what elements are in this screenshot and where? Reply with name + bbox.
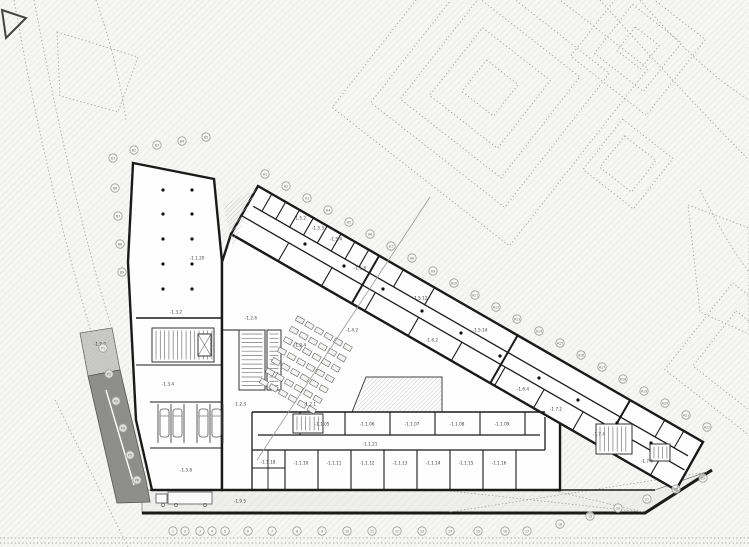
grid-bubble-bottom-label: 22	[674, 487, 678, 491]
grid-bubble-diagonal-label: A21	[683, 413, 689, 417]
room-label: -1.5.12	[413, 296, 428, 301]
grid-bubble-ramp-label: P3	[114, 399, 118, 403]
room-label: -1.3.2	[170, 310, 183, 315]
grid-bubble-bottom-label: 19	[588, 514, 592, 518]
grid-bubble-bottom-label: 1	[172, 529, 174, 533]
grid-bubble-ramp-label: P5	[128, 453, 132, 457]
west-block	[128, 163, 222, 490]
car	[199, 409, 208, 437]
grid-bubble-west-label: B8	[118, 242, 122, 246]
room-label: -1.1.13	[393, 461, 408, 466]
grid-bubble-bottom-label: 6	[247, 529, 249, 533]
room-label: -1.9.5	[234, 499, 247, 504]
grid-bubble-diagonal-label: A16	[578, 353, 584, 357]
room-label: -1.6.4	[517, 387, 530, 392]
grid-bubble-west-label: B4	[180, 139, 184, 143]
grid-bubble-bottom-label: 12	[395, 529, 399, 533]
grid-bubble-west-label: B3	[155, 143, 159, 147]
column-dot	[615, 421, 618, 424]
grid-bubble-diagonal-label: A20	[662, 401, 668, 405]
room-label: -1.1.16	[492, 461, 507, 466]
column-dot	[161, 188, 164, 191]
room-label: -1.7.6	[641, 459, 654, 464]
room-label: -1.3.4	[162, 382, 175, 387]
grid-bubble-ramp-label: P2	[107, 372, 111, 376]
column-dot	[381, 287, 384, 290]
grid-bubble-bottom-label: 16	[503, 529, 507, 533]
grid-bubble-west-label: B6	[113, 186, 117, 190]
room-label: -1.1.14	[426, 461, 441, 466]
room-label: -1.2.6	[245, 316, 258, 321]
room-label: -1.3.8	[180, 468, 193, 473]
column-dot	[576, 398, 579, 401]
room-label: -1.7.2	[550, 407, 563, 412]
column-dot	[190, 262, 193, 265]
grid-bubble-bottom-label: 10	[345, 529, 349, 533]
grid-bubble-diagonal-label: A18	[620, 377, 626, 381]
grid-bubble-bottom-label: 4	[211, 529, 213, 533]
column-dot	[161, 262, 164, 265]
grid-bubble-diagonal-label: A11	[472, 293, 478, 297]
grid-bubble-diagonal-label: A3	[305, 196, 309, 200]
room-label: -1.5.14	[473, 328, 488, 333]
room-label: -1.2.3	[234, 402, 247, 407]
floor-plan: -1.1.20-1.3.2-1.3.4-1.3.8-1.2.6-1.2.4-1.…	[0, 0, 749, 547]
car	[212, 409, 221, 437]
grid-bubble-bottom-label: 17	[525, 529, 529, 533]
grid-bubble-diagonal-label: A9	[431, 269, 435, 273]
grid-bubble-west-label: B2	[132, 148, 136, 152]
room-label: -1.5.8	[354, 266, 367, 271]
floor-plan-canvas: -1.1.20-1.3.2-1.3.4-1.3.8-1.2.6-1.2.4-1.…	[0, 0, 749, 547]
column-dot	[190, 287, 193, 290]
room-label: -1.1.21	[363, 442, 378, 447]
grid-bubble-bottom-label: 11	[370, 529, 374, 533]
stair-core	[596, 424, 632, 454]
grid-bubble-diagonal-label: A12	[493, 305, 499, 309]
grid-bubble-bottom-label: 3	[199, 529, 201, 533]
grid-bubble-diagonal-label: A1	[263, 172, 267, 176]
grid-bubble-bottom-label: 20	[616, 506, 620, 510]
room-label: -1.1.06	[360, 422, 375, 427]
grid-bubble-ramp-label: P4	[121, 426, 125, 430]
grid-bubble-bottom-label: 15	[476, 529, 480, 533]
column-dot	[537, 376, 540, 379]
unexcavated-hatch	[352, 377, 442, 412]
room-label: -1.1.20	[190, 256, 205, 261]
grid-bubble-diagonal-label: A6	[368, 232, 372, 236]
room-label: -1.1.12	[360, 461, 375, 466]
grid-bubble-bottom-label: 9	[321, 529, 323, 533]
room-label: -1.4.2	[346, 328, 359, 333]
grid-bubble-diagonal-label: A13	[514, 317, 520, 321]
grid-bubble-diagonal-label: A15	[557, 341, 563, 345]
truck-trailer	[168, 492, 212, 504]
grid-bubble-bottom-label: 7	[271, 529, 273, 533]
column-dot	[190, 188, 193, 191]
room-label: -1.7.4	[593, 432, 606, 437]
room-label: -1.1.07	[405, 422, 420, 427]
room-label: -1.1.15	[459, 461, 474, 466]
column-dot	[498, 354, 501, 357]
grid-bubble-bottom-label: 8	[296, 529, 298, 533]
grid-bubble-diagonal-label: A17	[599, 365, 605, 369]
column-dot	[190, 212, 193, 215]
column-dot	[161, 287, 164, 290]
column-dot	[190, 237, 193, 240]
grid-bubble-ramp-label: P1	[101, 346, 105, 350]
column-dot	[342, 264, 345, 267]
column-dot	[161, 237, 164, 240]
room-label: -1.1.09	[495, 422, 510, 427]
grid-bubble-diagonal-label: A14	[536, 329, 542, 333]
room-label: -1.1.05	[315, 422, 330, 427]
grid-bubble-bottom-label: 14	[448, 529, 452, 533]
room-label: -1.5.2	[294, 216, 307, 221]
grid-bubble-bottom-label: 21	[645, 497, 649, 501]
grid-bubble-diagonal-label: A8	[410, 256, 414, 260]
room-label: -1.2.1	[304, 402, 317, 407]
grid-bubble-diagonal-label: A10	[451, 281, 457, 285]
car	[160, 409, 169, 437]
grid-bubble-bottom-label: 13	[420, 529, 424, 533]
grid-bubble-bottom-label: 5	[224, 529, 226, 533]
room-label: -1.1.18	[261, 460, 276, 465]
room-label: -1.5.3	[312, 226, 325, 231]
room-label: -1.1.11	[327, 461, 342, 466]
room-label: -1.5.4	[330, 237, 343, 242]
grid-bubble-diagonal-label: A2	[284, 184, 288, 188]
grid-bubble-diagonal-label: A7	[389, 244, 393, 248]
grid-bubble-diagonal-label: A5	[347, 220, 351, 224]
room-label: -1.1.08	[450, 422, 465, 427]
column-dot	[420, 309, 423, 312]
grid-bubble-diagonal-label: A4	[326, 208, 330, 212]
grid-bubble-ramp-label: P6	[135, 478, 139, 482]
grid-bubble-bottom-label: 23	[701, 476, 705, 480]
grid-bubble-bottom-label: 18	[558, 522, 562, 526]
grid-bubble-west-label: B9	[120, 270, 124, 274]
room-label: -1.2.4	[294, 343, 307, 348]
grid-bubble-west-label: B1	[111, 156, 115, 160]
column-dot	[303, 242, 306, 245]
room-label: -1.6.2	[426, 338, 439, 343]
grid-bubble-bottom-label: 2	[184, 529, 186, 533]
grid-bubble-diagonal-label: A19	[641, 389, 647, 393]
column-dot	[459, 331, 462, 334]
grid-bubble-west-label: B5	[204, 135, 208, 139]
room-label: -1.1.10	[294, 461, 309, 466]
column-dot	[161, 212, 164, 215]
truck-cab	[156, 494, 167, 503]
column-dot	[649, 441, 652, 444]
grid-bubble-diagonal-label: A22	[704, 425, 710, 429]
car	[173, 409, 182, 437]
grid-bubble-west-label: B7	[116, 214, 120, 218]
